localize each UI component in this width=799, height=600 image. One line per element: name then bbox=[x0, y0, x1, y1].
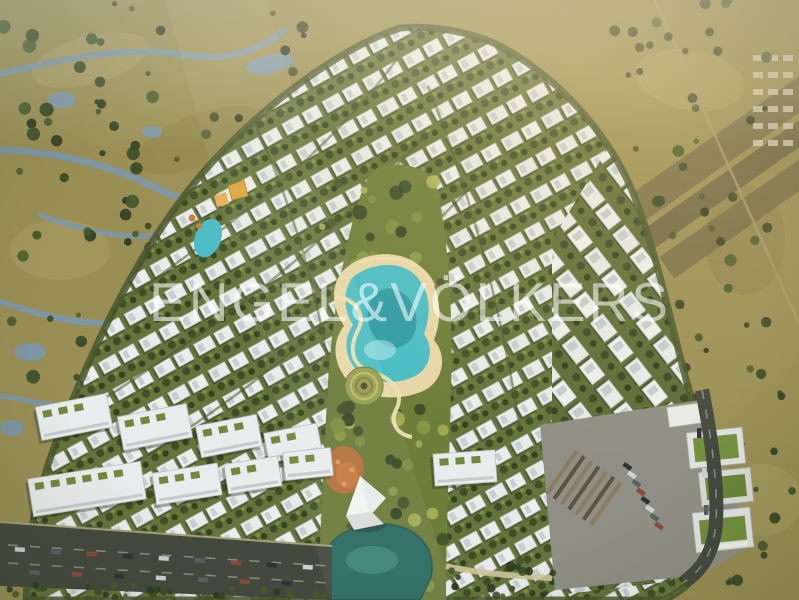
masterplan-illustration: ENGEL&VÖLKERS bbox=[0, 0, 799, 600]
watermark-text: ENGEL&VÖLKERS bbox=[149, 271, 671, 333]
aerial-render: ENGEL&VÖLKERS bbox=[0, 0, 799, 600]
